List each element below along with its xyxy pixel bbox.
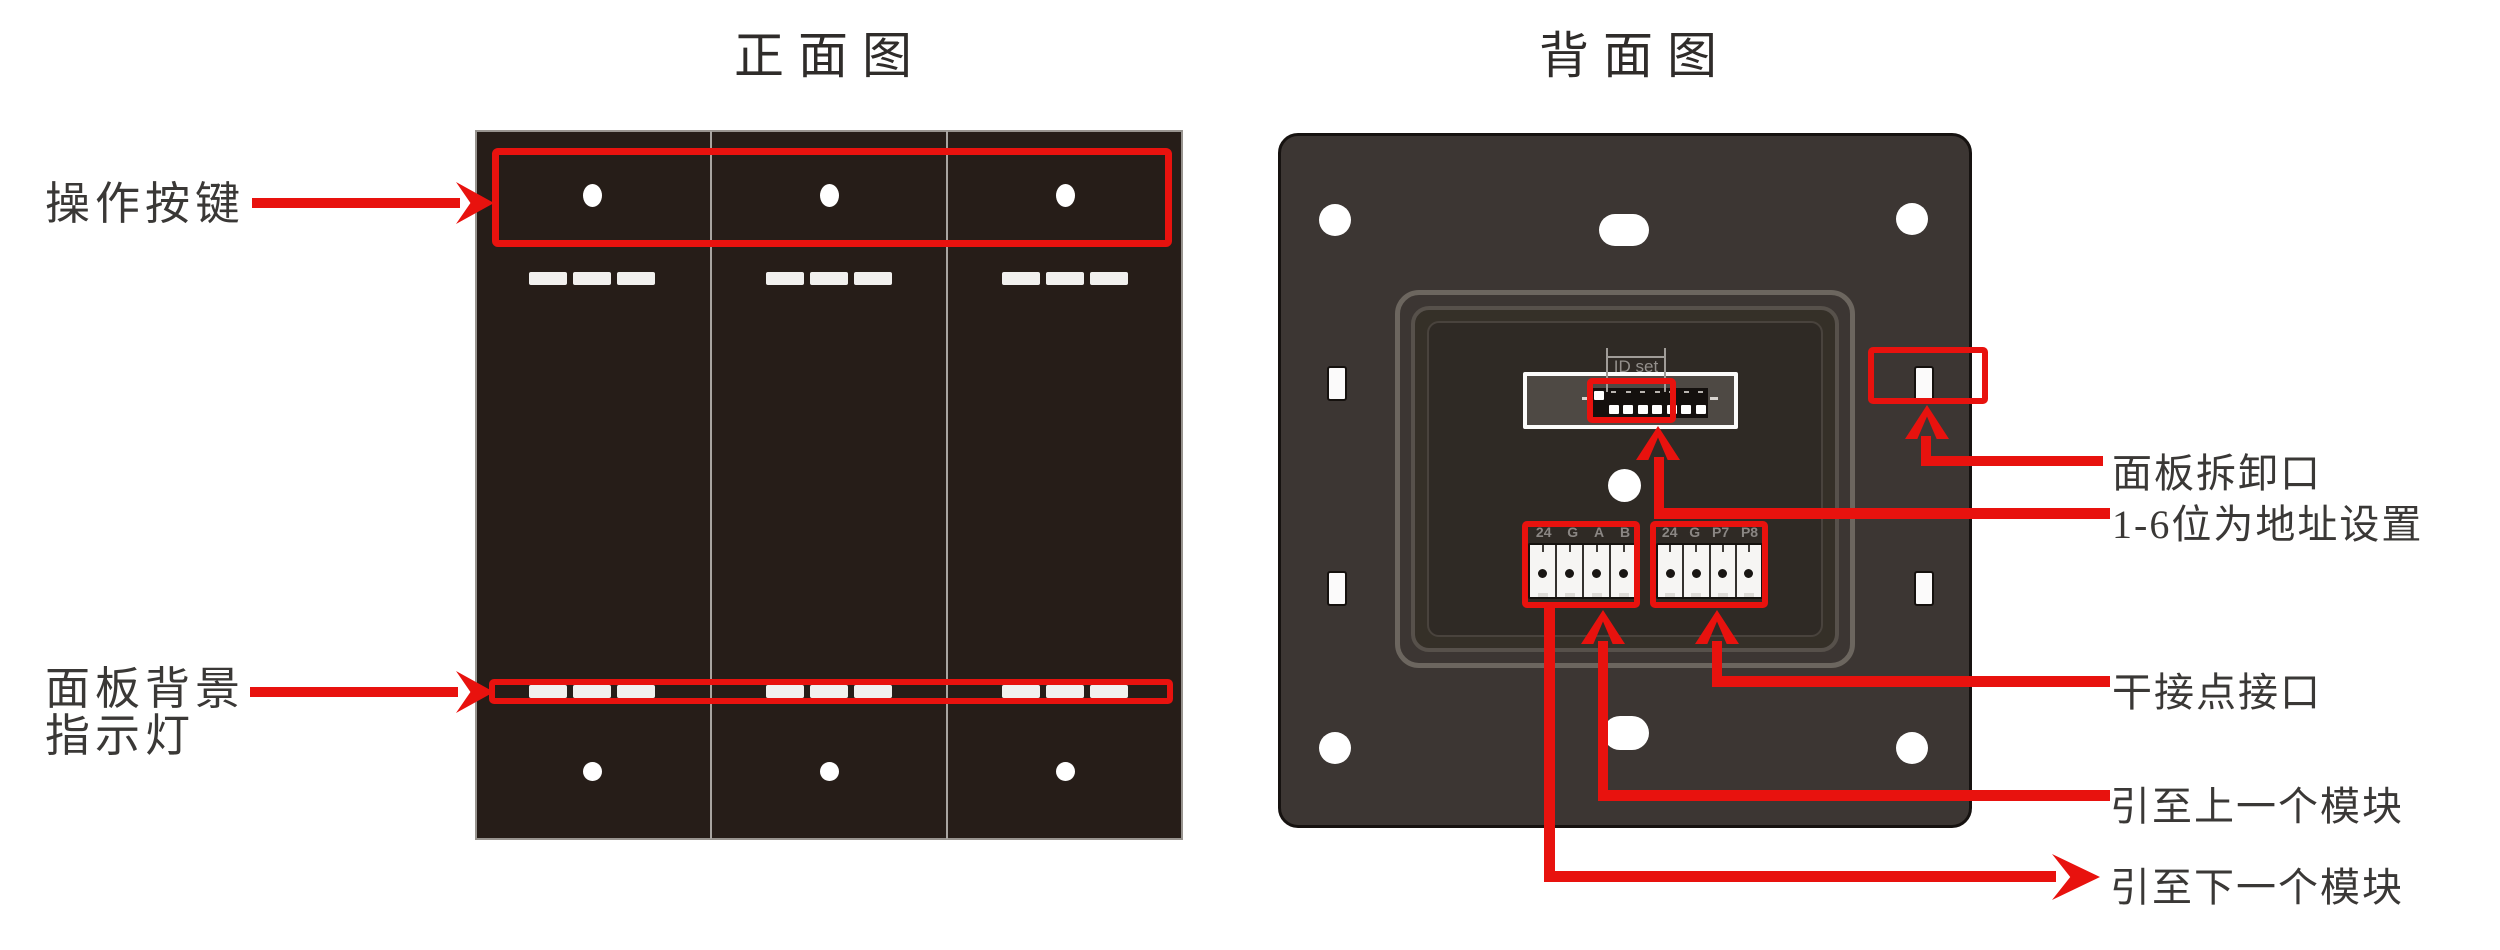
callout-line — [1598, 790, 2110, 801]
dip-end-mark — [1710, 397, 1718, 400]
diagram-canvas: 正面图 背面图 操作按键 面板背景 指示灯 ID set — [0, 0, 2500, 950]
dip-scale-tick — [1698, 391, 1703, 393]
callout-line — [252, 198, 460, 208]
label-backlight-line2: 指示灯 — [45, 713, 245, 760]
mounting-hole — [1896, 732, 1928, 764]
mounting-slot — [1603, 716, 1649, 750]
label-backlight-indicators: 面板背景 指示灯 — [45, 666, 245, 760]
bus-terminal-highlight-box — [1522, 521, 1640, 608]
mounting-hole — [1896, 203, 1928, 235]
front-indicator-dot — [583, 762, 602, 781]
front-key-dash — [573, 272, 611, 285]
front-key-dash — [766, 272, 804, 285]
label-operation-buttons: 操作按键 — [45, 181, 245, 228]
callout-line — [1654, 508, 2110, 519]
center-screw-hole — [1608, 469, 1641, 502]
front-key-dash — [1002, 272, 1040, 285]
front-key-dash — [854, 272, 892, 285]
panel-clip-slot — [1914, 571, 1934, 606]
front-indicator-dot — [1056, 762, 1075, 781]
callout-stem — [1598, 641, 1608, 801]
id-set-label: ID set — [1596, 357, 1676, 377]
front-key-dash — [617, 272, 655, 285]
dip-scale-tick — [1684, 391, 1689, 393]
callout-stem — [1544, 608, 1555, 882]
front-view-title: 正面图 — [640, 16, 1020, 88]
panel-clip-slot — [1327, 571, 1347, 606]
callout-line — [1712, 676, 2110, 687]
panel-clip-slot — [1327, 366, 1347, 401]
backlight-highlight-box — [489, 679, 1173, 704]
front-indicator-dot — [820, 762, 839, 781]
clip-highlight-box — [1868, 347, 1988, 404]
buttons-highlight-box — [492, 148, 1172, 247]
front-key-dash — [529, 272, 567, 285]
label-to-next-module: 引至下一个模块 — [2110, 855, 2404, 913]
dip-switch-nub-7-down — [1681, 405, 1691, 414]
front-key-dash — [1090, 272, 1128, 285]
mounting-hole — [1319, 204, 1351, 236]
label-dry-contact: 干接点接口 — [2112, 660, 2322, 718]
dip-switch-nub-8-down — [1696, 405, 1706, 414]
label-backlight-line1: 面板背景 — [45, 666, 245, 713]
mounting-hole — [1319, 732, 1351, 764]
label-to-prev-module: 引至上一个模块 — [2110, 774, 2404, 832]
label-detach-port: 面板拆卸口 — [2112, 441, 2322, 499]
front-key-dash — [810, 272, 848, 285]
right-arrow-icon — [2052, 854, 2100, 900]
mounting-slot — [1599, 214, 1649, 246]
callout-line — [250, 687, 458, 697]
label-address-setting: 1-6位为地址设置 — [2112, 492, 2423, 550]
front-key-dash — [1046, 272, 1084, 285]
callout-line — [1544, 871, 2056, 882]
dip-address-highlight-box — [1587, 378, 1676, 423]
callout-line — [1921, 456, 2103, 466]
back-view-title: 背面图 — [1445, 16, 1825, 88]
dry-contact-highlight-box — [1650, 521, 1768, 608]
